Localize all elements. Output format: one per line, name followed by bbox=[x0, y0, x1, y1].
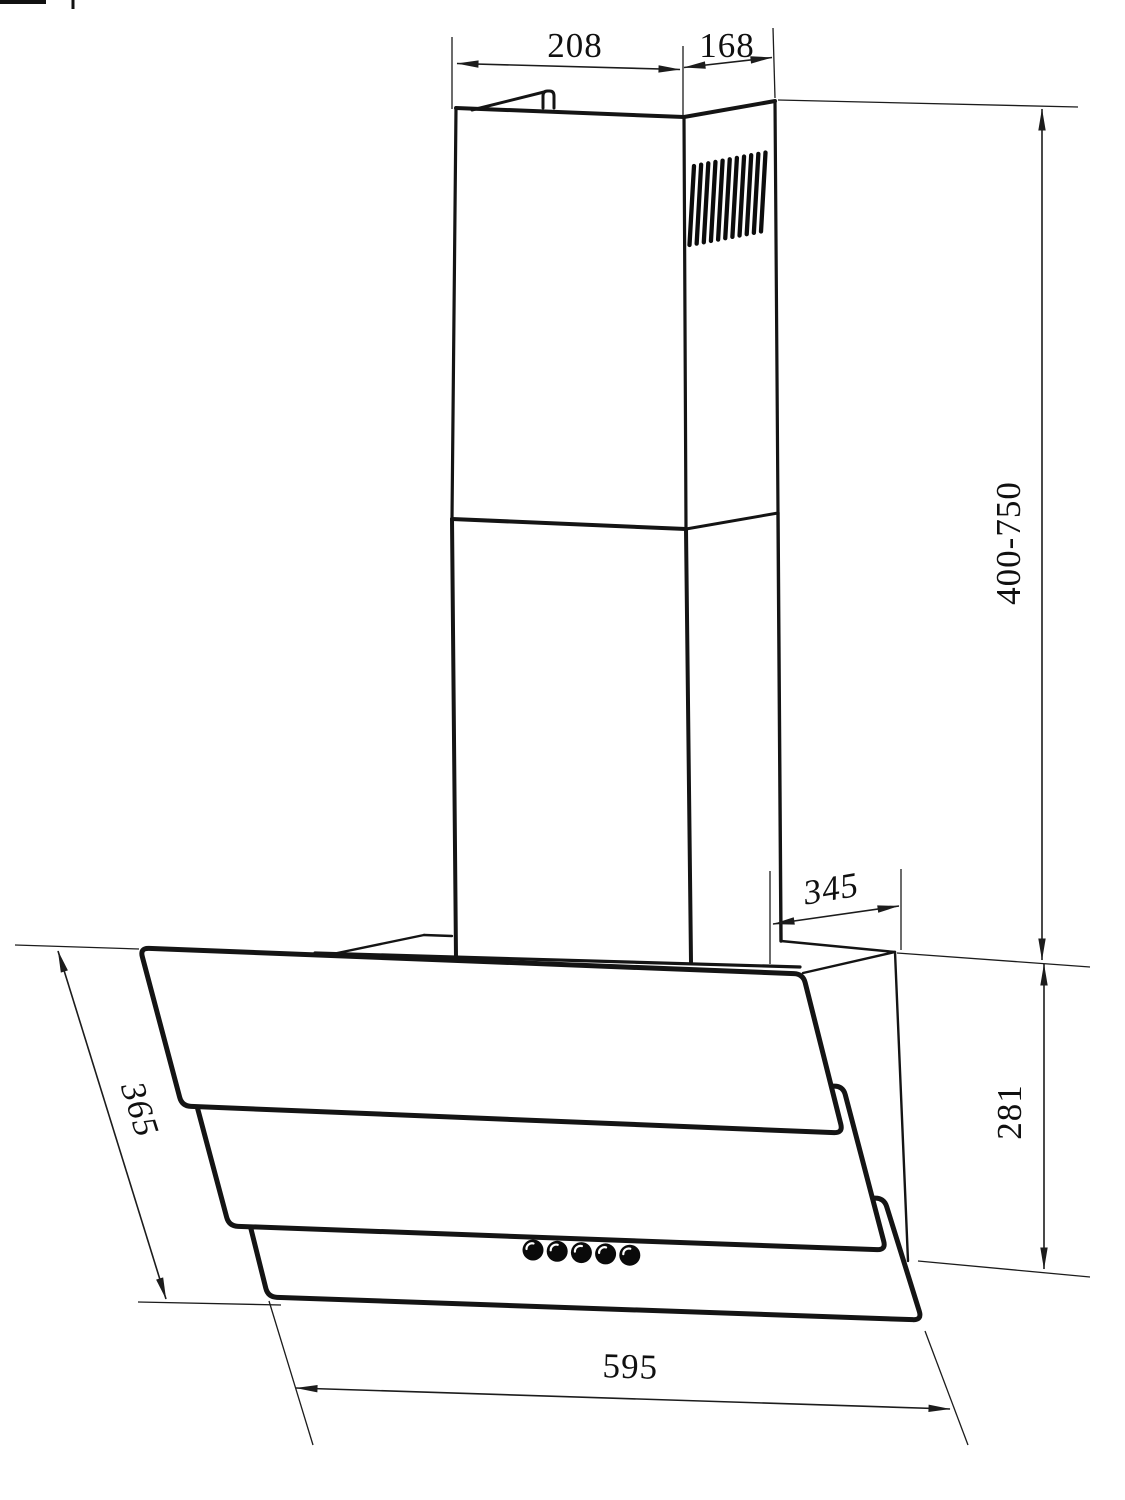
chimney-top-front-edge bbox=[456, 108, 684, 117]
vent-slat bbox=[711, 162, 716, 241]
dim-chimney-height-range: 400-750 bbox=[778, 100, 1090, 967]
vent-slat bbox=[732, 158, 737, 237]
vent-slat bbox=[718, 161, 723, 240]
page-edge-artifact bbox=[0, 0, 73, 9]
dim-label-400-750: 400-750 bbox=[989, 481, 1028, 605]
mounting-bracket-tab bbox=[472, 91, 554, 110]
vent-slat bbox=[690, 166, 695, 245]
chimney-top-side-edge bbox=[684, 101, 775, 117]
glass-panels bbox=[142, 948, 920, 1319]
range-hood-dimension-diagram: 208 168 400-750 345 281 365 595 bbox=[0, 0, 1125, 1500]
technical-drawing-page: 208 168 400-750 345 281 365 595 bbox=[0, 0, 1125, 1500]
top-right-depth-edge bbox=[803, 952, 895, 973]
vent-slat bbox=[740, 157, 745, 236]
vent-slat bbox=[761, 153, 766, 232]
vent-slat bbox=[704, 163, 709, 242]
dim-label-281: 281 bbox=[990, 1084, 1029, 1140]
vent-slat bbox=[725, 159, 730, 238]
dim-hood-right-height: 281 bbox=[918, 964, 1090, 1277]
vent-grille bbox=[690, 153, 766, 246]
dim-hood-bottom-width: 595 bbox=[269, 1301, 968, 1445]
dim-label-595: 595 bbox=[602, 1346, 659, 1387]
dim-hood-top-depth: 345 bbox=[770, 865, 901, 964]
glass-panel-1 bbox=[142, 948, 841, 1132]
chimney-junction-side bbox=[686, 513, 778, 529]
wall-rear-edge bbox=[895, 952, 908, 1261]
chimney-lower-section bbox=[452, 513, 781, 962]
dim-label-345: 345 bbox=[800, 865, 862, 913]
vent-slat bbox=[754, 154, 759, 233]
vent-slat bbox=[697, 165, 702, 244]
vent-slat bbox=[747, 155, 752, 234]
top-back-edge-right bbox=[781, 941, 895, 952]
top-back-edge-left bbox=[424, 935, 452, 936]
dim-chimney-side-depth: 168 bbox=[684, 26, 775, 98]
chimney-junction-front bbox=[452, 519, 686, 529]
chimney-upper-section bbox=[452, 91, 778, 529]
dim-chimney-front-width: 208 bbox=[452, 26, 683, 115]
dim-label-168: 168 bbox=[699, 26, 755, 65]
dim-label-365: 365 bbox=[113, 1076, 167, 1142]
dim-label-208: 208 bbox=[547, 26, 603, 65]
